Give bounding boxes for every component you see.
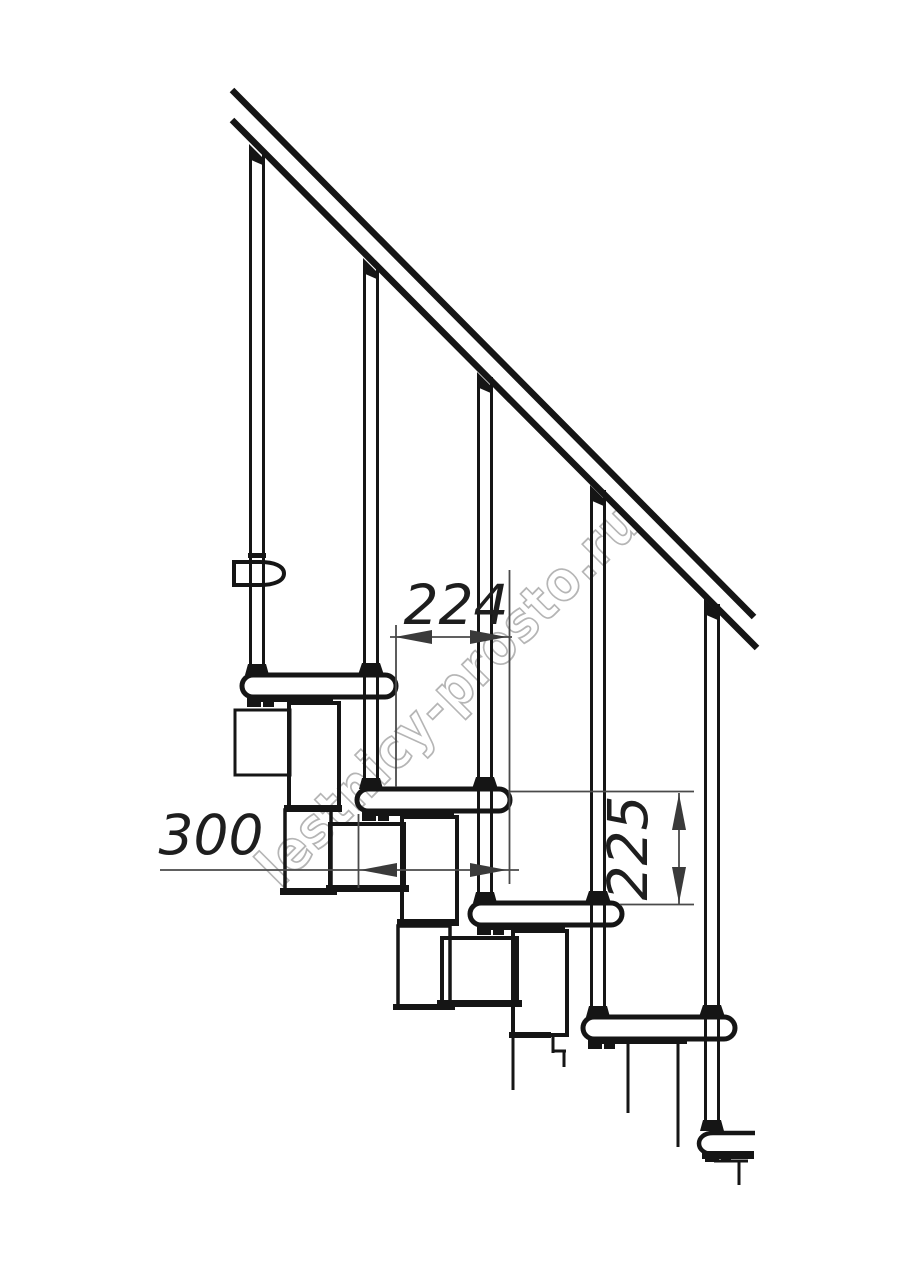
drawing-canvas: lestnicy-prosto.ru — [0, 0, 914, 1280]
landing-tread-5 — [700, 1120, 724, 1131]
landing-tread-2 — [359, 778, 383, 789]
clamp-on-tread-4 — [699, 1005, 725, 1017]
landing-tread-4 — [586, 1006, 610, 1017]
baluster-1-collar — [248, 553, 266, 558]
staircase-technical-drawing: lestnicy-prosto.ru — [0, 0, 914, 1280]
dimension-224-label: 224 — [404, 573, 509, 637]
dimension-300-label: 300 — [159, 803, 264, 867]
clamp-on-tread-2 — [472, 777, 498, 789]
dimension-225-label: 225 — [596, 796, 660, 901]
landing-tread-1 — [245, 664, 269, 675]
clamp-on-tread-1 — [358, 663, 384, 675]
landing-tread-3 — [473, 892, 497, 903]
